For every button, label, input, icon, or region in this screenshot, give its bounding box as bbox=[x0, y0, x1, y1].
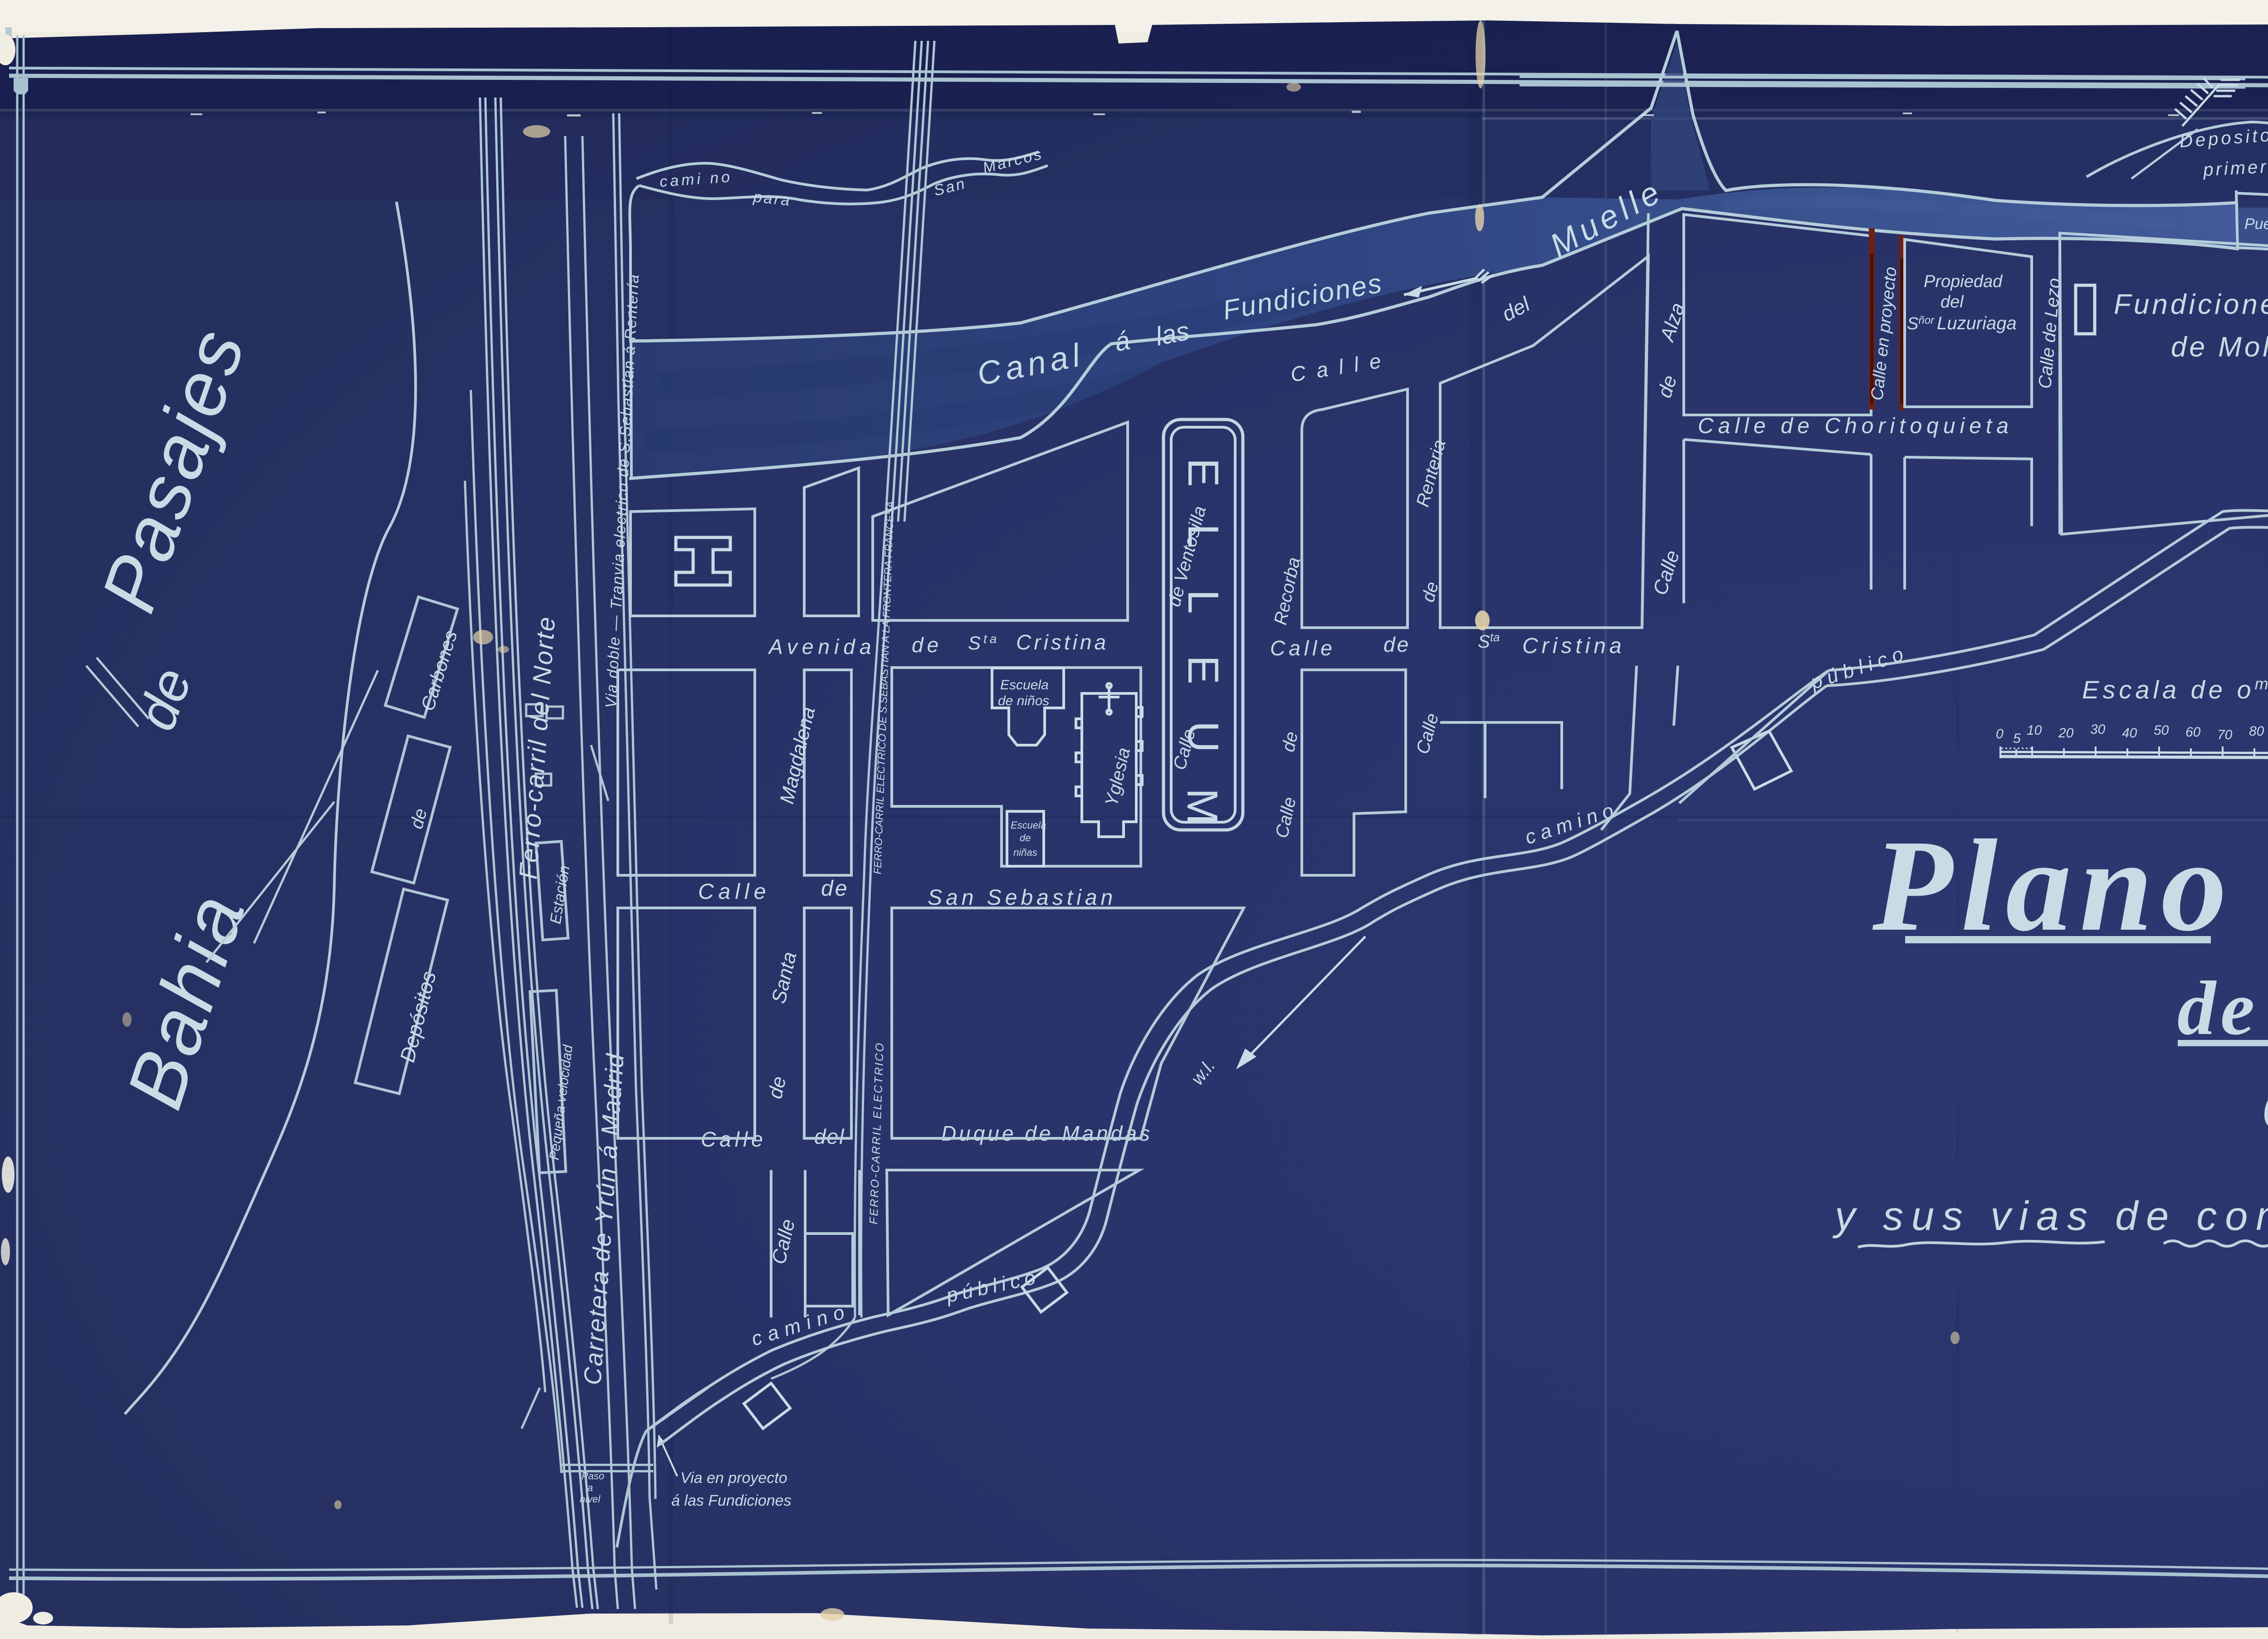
svg-text:Escala de om,oo1 por metro: Escala de om,oo1 por metro bbox=[2082, 674, 2268, 704]
svg-text:de: de bbox=[1020, 832, 1031, 844]
svg-text:y sus vias de comunicacion: y sus vias de comunicacion bbox=[1832, 1194, 2268, 1239]
svg-text:Escuela: Escuela bbox=[1011, 819, 1046, 831]
svg-text:de niños: de niños bbox=[998, 693, 1049, 708]
svg-text:del Molinao: del Molinao bbox=[2263, 1056, 2268, 1144]
svg-text:a: a bbox=[587, 1482, 593, 1493]
svg-text:de: de bbox=[912, 633, 942, 657]
svg-text:á las Fundiciones: á las Fundiciones bbox=[671, 1492, 792, 1509]
svg-text:Avenida: Avenida bbox=[767, 635, 875, 659]
svg-text:Calle: Calle bbox=[1270, 636, 1336, 660]
svg-text:Escuela: Escuela bbox=[1000, 678, 1049, 693]
svg-text:70: 70 bbox=[2217, 727, 2233, 742]
svg-text:del: del bbox=[814, 1125, 845, 1148]
svg-text:10: 10 bbox=[2027, 723, 2042, 738]
svg-text:niñas: niñas bbox=[1013, 847, 1037, 858]
svg-text:M: M bbox=[1178, 788, 1227, 824]
svg-text:de: de bbox=[821, 877, 849, 901]
svg-text:Duque de Mandas: Duque de Mandas bbox=[941, 1122, 1153, 1145]
svg-text:nivel: nivel bbox=[580, 1493, 601, 1505]
svg-text:de Molinao: de Molinao bbox=[2171, 332, 2268, 363]
svg-text:Propiedad: Propiedad bbox=[1924, 272, 2003, 291]
svg-text:Puente: Puente bbox=[2244, 215, 2268, 233]
svg-text:20: 20 bbox=[2058, 726, 2074, 741]
svg-text:Calle: Calle bbox=[698, 880, 770, 904]
svg-text:50: 50 bbox=[2154, 723, 2169, 738]
svg-text:de: de bbox=[1278, 730, 1302, 754]
svg-text:0: 0 bbox=[1996, 727, 2004, 741]
svg-text:Calle de Choritoquieta: Calle de Choritoquieta bbox=[1698, 414, 2013, 438]
svg-text:Fundiciones: Fundiciones bbox=[2114, 289, 2268, 320]
svg-text:Paso: Paso bbox=[582, 1470, 604, 1482]
svg-text:las: las bbox=[1153, 316, 1192, 351]
svg-text:E: E bbox=[1179, 458, 1227, 487]
svg-text:80: 80 bbox=[2249, 724, 2264, 739]
svg-text:30: 30 bbox=[2090, 722, 2106, 737]
svg-text:del: del bbox=[1941, 293, 1964, 312]
svg-text:Cristina: Cristina bbox=[1522, 634, 1625, 658]
svg-text:San Sebastian: San Sebastian bbox=[928, 886, 1116, 910]
svg-text:de los terrenos: de los terrenos bbox=[2177, 966, 2268, 1051]
svg-text:40: 40 bbox=[2122, 726, 2137, 741]
svg-text:E: E bbox=[1179, 655, 1227, 684]
svg-text:60: 60 bbox=[2185, 725, 2201, 740]
svg-text:5: 5 bbox=[2013, 731, 2021, 746]
svg-text:Via en proyecto: Via en proyecto bbox=[680, 1469, 787, 1487]
svg-text:de: de bbox=[1383, 633, 1410, 656]
